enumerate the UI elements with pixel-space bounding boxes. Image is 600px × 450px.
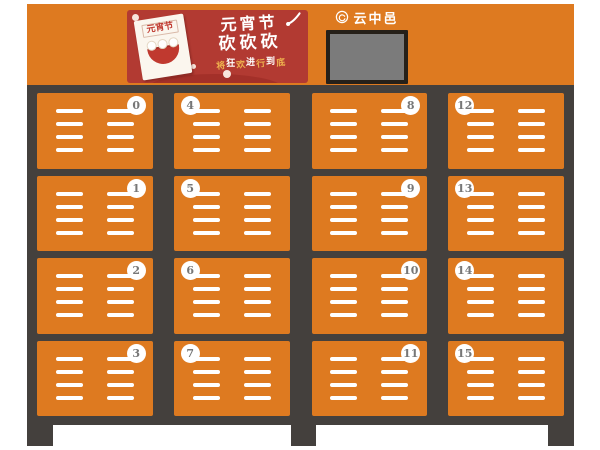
door-number-badge: 0: [127, 96, 146, 115]
vent-slats: [467, 192, 545, 235]
poster-title: 元宵节: [142, 20, 179, 38]
vent-slats: [193, 274, 271, 317]
brand: 云中邑: [323, 8, 411, 26]
smart-locker-scene: 元宵节 元宵节 砍砍砍 将狂欢进行到底: [0, 0, 600, 450]
locker-door-5[interactable]: 5: [174, 176, 290, 252]
door-number-badge: 7: [181, 344, 200, 363]
tangyuan-bowl-icon: [146, 37, 182, 67]
vent-slats: [330, 357, 408, 400]
locker-door-9[interactable]: 9: [312, 176, 428, 252]
locker-grid-left-half: 04152637: [37, 93, 290, 416]
brush-icon: [285, 11, 304, 26]
vent-slats: [56, 109, 134, 152]
vent-slats: [56, 274, 134, 317]
vent-slats: [56, 357, 134, 400]
banner-title-line2: 砍砍砍: [196, 30, 305, 56]
vent-slats: [193, 192, 271, 235]
vent-slats: [467, 357, 545, 400]
brand-name: 云中邑: [353, 8, 398, 27]
promo-banner: 元宵节 元宵节 砍砍砍 将狂欢进行到底: [127, 10, 308, 83]
display-screen[interactable]: [326, 30, 408, 84]
cabinet-header: 元宵节 元宵节 砍砍砍 将狂欢进行到底: [27, 4, 574, 85]
vent-slats: [467, 109, 545, 152]
locker-door-8[interactable]: 8: [312, 93, 428, 169]
cabinet-leg-left: [27, 425, 53, 446]
cabinet-leg-center: [291, 425, 316, 446]
locker-door-7[interactable]: 7: [174, 341, 290, 417]
banner-subtitle: 将狂欢进行到底: [197, 53, 306, 72]
vent-slats: [193, 357, 271, 400]
door-number-badge: 3: [127, 344, 146, 363]
door-number-badge: 1: [127, 179, 146, 198]
door-number-badge: 15: [455, 344, 474, 363]
cabinet-leg-right: [548, 425, 574, 446]
vent-slats: [330, 109, 408, 152]
locker-door-13[interactable]: 13: [448, 176, 564, 252]
door-number-badge: 9: [401, 179, 420, 198]
locker-door-1[interactable]: 1: [37, 176, 153, 252]
locker-door-0[interactable]: 0: [37, 93, 153, 169]
vent-slats: [330, 274, 408, 317]
door-number-badge: 11: [401, 344, 420, 363]
vent-slats: [330, 192, 408, 235]
locker-door-14[interactable]: 14: [448, 258, 564, 334]
door-number-badge: 8: [401, 96, 420, 115]
locker-door-3[interactable]: 3: [37, 341, 153, 417]
vent-slats: [467, 274, 545, 317]
door-number-badge: 4: [181, 96, 200, 115]
door-number-badge: 5: [181, 179, 200, 198]
locker-grid: 04152637 81291310141115: [27, 85, 574, 416]
locker-door-15[interactable]: 15: [448, 341, 564, 417]
locker-door-11[interactable]: 11: [312, 341, 428, 417]
locker-door-4[interactable]: 4: [174, 93, 290, 169]
vent-slats: [193, 109, 271, 152]
locker-door-6[interactable]: 6: [174, 258, 290, 334]
locker-door-12[interactable]: 12: [448, 93, 564, 169]
vent-slats: [56, 192, 134, 235]
brand-logo-icon: [335, 10, 349, 24]
door-number-badge: 2: [127, 261, 146, 280]
banner-text-block: 元宵节 砍砍砍 将狂欢进行到底: [195, 11, 306, 72]
locker-grid-right-half: 81291310141115: [312, 93, 565, 416]
door-number-badge: 6: [181, 261, 200, 280]
festival-poster: 元宵节: [134, 13, 193, 80]
kiosk-console: 云中邑: [323, 8, 411, 84]
locker-door-2[interactable]: 2: [37, 258, 153, 334]
door-number-badge: 13: [455, 179, 474, 198]
door-number-badge: 10: [401, 261, 420, 280]
locker-cabinet: 元宵节 元宵节 砍砍砍 将狂欢进行到底: [27, 4, 574, 425]
locker-door-10[interactable]: 10: [312, 258, 428, 334]
